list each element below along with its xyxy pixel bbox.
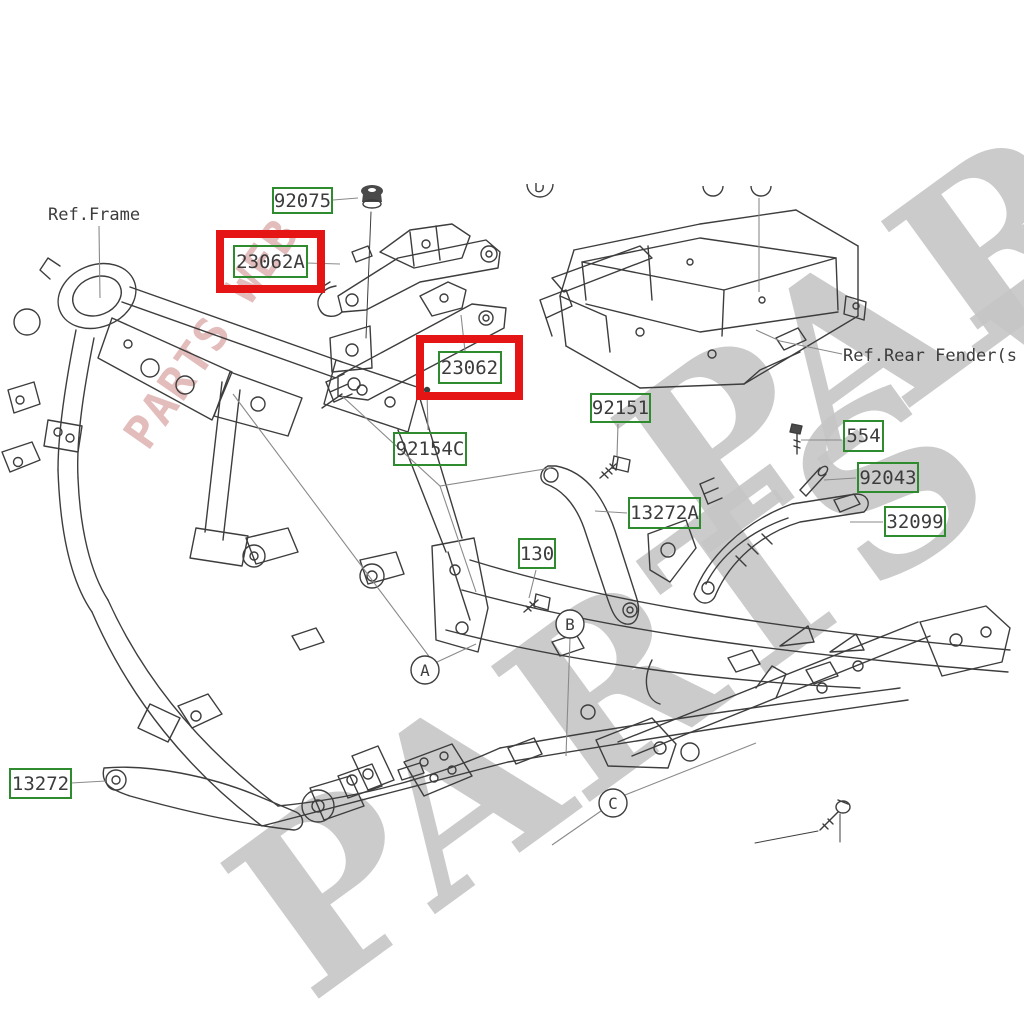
part-label-23062A[interactable]: 23062A (233, 245, 308, 278)
part-label-92154C[interactable]: 92154C (393, 432, 467, 466)
part-label-13272[interactable]: 13272 (9, 768, 72, 799)
clipped-callout-arcs (527, 183, 771, 197)
callout-a: A (411, 656, 439, 684)
part-label-92151[interactable]: 92151 (590, 393, 651, 423)
highlight-box-23062: 23062 (416, 335, 523, 400)
part-label-13272A[interactable]: 13272A (628, 497, 701, 529)
highlight-box-23062A: 23062A (216, 230, 325, 293)
callout-b: B (556, 610, 584, 638)
part-label-130[interactable]: 130 (518, 538, 556, 569)
svg-text:A: A (420, 661, 430, 680)
part-label-23062[interactable]: 23062 (438, 351, 502, 384)
ref-rear-fender-label: Ref.Rear Fender(s (843, 346, 1017, 366)
parts-diagram-page: PARTS WEB PARTS WEB PARTS WEB (0, 0, 1024, 1024)
part-label-32099[interactable]: 32099 (884, 506, 946, 537)
damper-92075-part (361, 185, 383, 208)
ref-frame-label: Ref.Frame (48, 205, 140, 225)
part-label-92075[interactable]: 92075 (272, 187, 333, 214)
svg-text:C: C (608, 794, 618, 813)
diagram-canvas: PARTS WEB PARTS WEB PARTS WEB (0, 0, 1024, 1024)
callout-c: C (599, 789, 627, 817)
part-label-92043[interactable]: 92043 (857, 462, 919, 493)
part-label-554[interactable]: 554 (843, 420, 884, 452)
svg-text:B: B (565, 615, 575, 634)
